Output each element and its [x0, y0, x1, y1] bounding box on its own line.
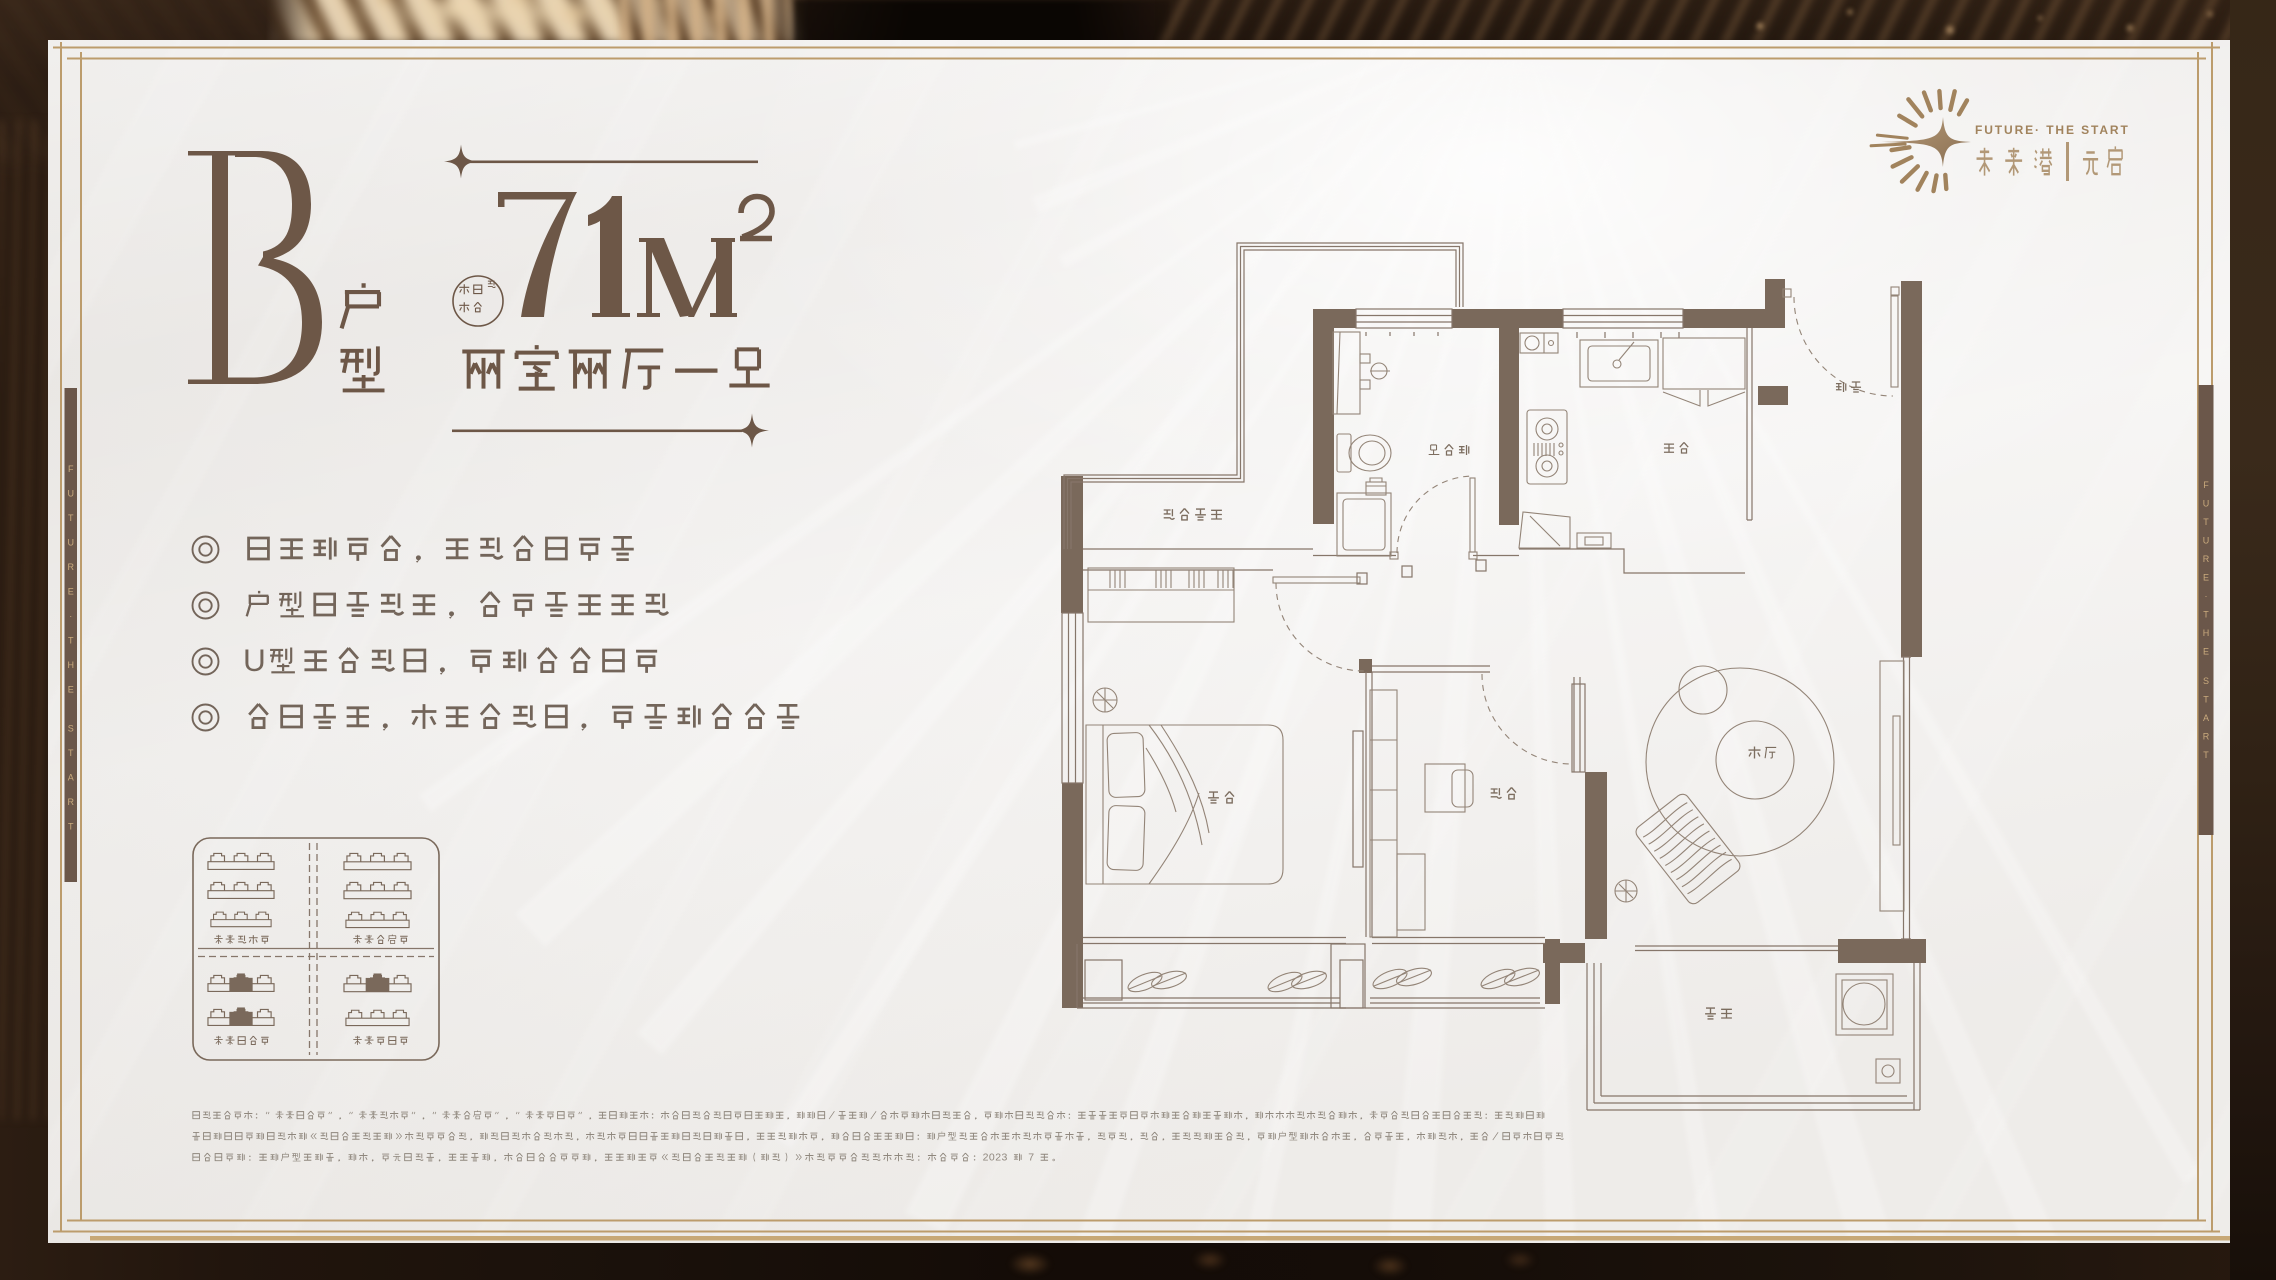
svg-text:E: E: [2203, 647, 2209, 657]
svg-text:T: T: [68, 822, 74, 832]
svg-text:T: T: [2203, 750, 2209, 760]
svg-text:0: 0: [989, 1152, 995, 1164]
svg-text:T: T: [68, 748, 74, 758]
svg-text:U: U: [68, 538, 75, 548]
svg-text:E: E: [2203, 573, 2209, 583]
svg-text:·: ·: [69, 611, 72, 621]
svg-text:2: 2: [995, 1152, 1001, 1164]
svg-text:T: T: [2203, 695, 2209, 705]
svg-text:F: F: [2203, 480, 2209, 490]
svg-text:R: R: [2203, 554, 2210, 564]
svg-text:H: H: [2203, 628, 2210, 638]
svg-text:R: R: [68, 562, 75, 572]
svg-text:T: T: [68, 513, 74, 523]
svg-text:S: S: [68, 724, 74, 734]
svg-text:R: R: [68, 797, 75, 807]
svg-text:A: A: [68, 773, 74, 783]
svg-text:2: 2: [983, 1152, 989, 1164]
svg-text:7: 7: [1028, 1152, 1034, 1164]
svg-text:F: F: [68, 464, 74, 474]
svg-text:T: T: [2203, 517, 2209, 527]
svg-text:U: U: [2203, 536, 2210, 546]
svg-text:S: S: [2203, 676, 2209, 686]
svg-text:H: H: [68, 660, 75, 670]
svg-text:T: T: [68, 636, 74, 646]
svg-text:E: E: [68, 587, 74, 597]
svg-text:FUTURE· THE START: FUTURE· THE START: [1975, 123, 2130, 137]
svg-text:U: U: [68, 489, 75, 499]
svg-text:3: 3: [1002, 1152, 1008, 1164]
svg-text:·: ·: [2205, 591, 2208, 601]
svg-text:R: R: [2203, 732, 2210, 742]
svg-text:A: A: [2203, 713, 2209, 723]
svg-text:T: T: [2203, 610, 2209, 620]
svg-text:U: U: [243, 642, 266, 678]
svg-text:E: E: [68, 685, 74, 695]
svg-text:U: U: [2203, 499, 2210, 509]
